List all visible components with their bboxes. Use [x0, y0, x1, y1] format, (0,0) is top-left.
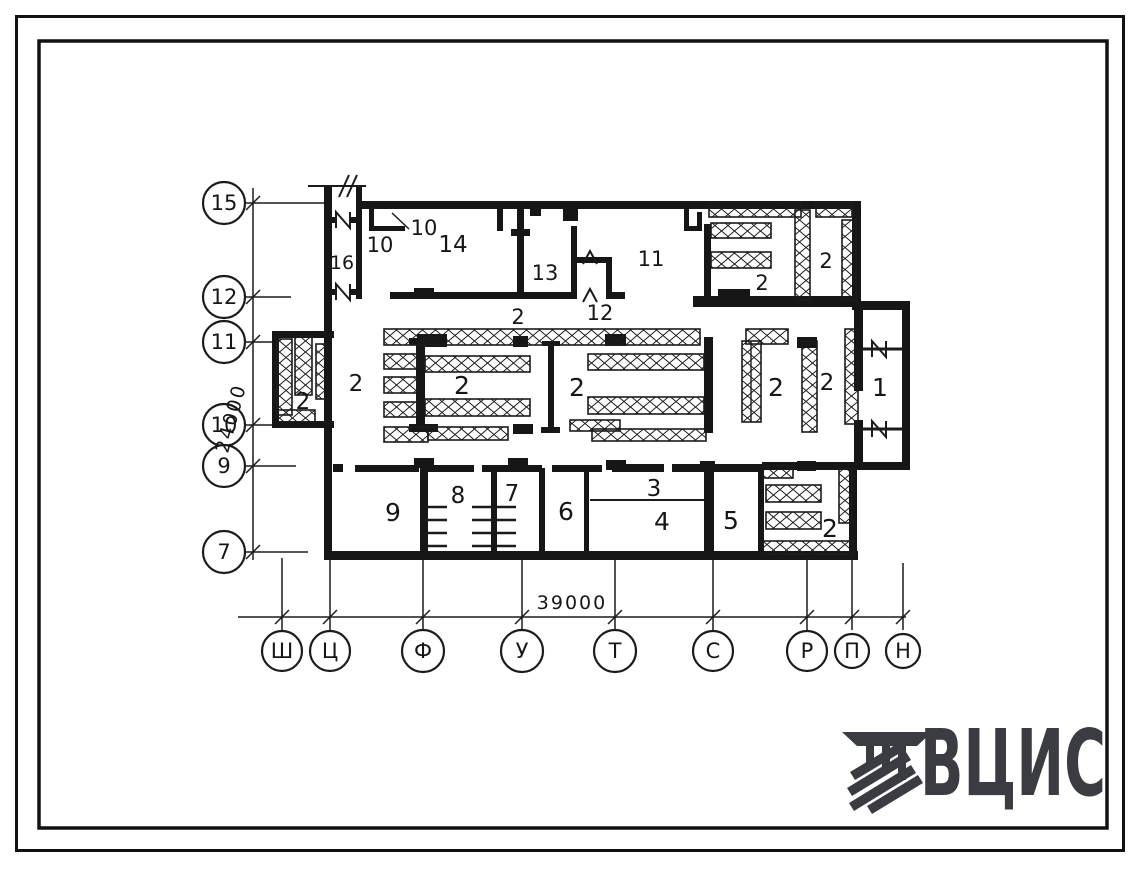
row-marker-label: 12 [211, 285, 238, 309]
room-label: 2 [768, 373, 784, 402]
room-label: 1 [872, 373, 888, 402]
vcis-logo-icon [842, 732, 932, 814]
room-label: 2 [454, 371, 470, 400]
col-marker-label: Ф [414, 639, 432, 663]
room-label: 8 [451, 483, 466, 509]
row-marker-7: 7 [203, 531, 245, 573]
room-label: 2 [820, 370, 835, 396]
room-label: 10 [411, 216, 438, 240]
col-marker-u: У [501, 630, 543, 672]
room-label: 2 [755, 271, 768, 295]
col-marker-p: П [835, 634, 869, 668]
col-marker-ts: Ц [310, 631, 350, 671]
col-marker-label: С [706, 639, 721, 663]
col-marker-label: Ш [271, 639, 293, 663]
room-label: 9 [385, 498, 401, 527]
vcis-logo-text: ВЦИС [920, 711, 1106, 818]
room-label: 13 [532, 261, 559, 285]
drawing-sheet: 16 10 10 14 13 12 11 2 2 2 2 2 2 2 2 2 1… [0, 0, 1139, 869]
col-marker-t: Т [594, 630, 636, 672]
col-marker-label: Р [801, 639, 814, 663]
room-label: 2 [822, 514, 838, 543]
row-marker-15: 15 [203, 182, 245, 224]
col-marker-s: С [693, 631, 733, 671]
room-label: 12 [587, 301, 614, 325]
col-marker-sh: Ш [262, 631, 302, 671]
room-label: 16 [330, 252, 354, 274]
col-marker-label: Т [608, 639, 622, 663]
row-marker-label: 9 [217, 454, 230, 478]
row-marker-11: 11 [203, 321, 245, 363]
col-marker-n: Н [886, 634, 920, 668]
col-marker-f: Ф [402, 630, 444, 672]
room-label: 2 [819, 249, 832, 273]
col-marker-r: Р [787, 631, 827, 671]
room-label: 6 [558, 497, 574, 526]
room-label: 2 [569, 373, 585, 402]
row-marker-12: 12 [203, 276, 245, 318]
row-marker-label: 15 [211, 191, 238, 215]
room-label: 2 [349, 371, 364, 397]
horizontal-dimension: 39000 [537, 592, 607, 614]
col-marker-label: Ц [322, 639, 338, 663]
room-label: 10 [367, 233, 394, 257]
room-label: 2 [511, 305, 524, 329]
col-marker-label: Н [895, 639, 911, 663]
room-label: 5 [723, 506, 739, 535]
col-marker-label: У [516, 639, 529, 663]
room-label: 11 [638, 247, 665, 271]
room-label: 4 [654, 507, 670, 536]
floor-plan-drawing: 16 10 10 14 13 12 11 2 2 2 2 2 2 2 2 2 1… [0, 0, 1139, 869]
room-label: 14 [438, 232, 467, 258]
room-label: 7 [505, 481, 520, 507]
room-label: 2 [296, 389, 311, 415]
room-label: 3 [647, 476, 662, 502]
vcis-logo: ВЦИС [842, 711, 1106, 818]
stairs [427, 507, 516, 546]
row-marker-label: 7 [217, 540, 230, 564]
col-axis: 39000 Ш Ц Ф У Т С Р П [238, 558, 920, 672]
col-marker-label: П [844, 639, 860, 663]
row-marker-label: 11 [211, 330, 238, 354]
